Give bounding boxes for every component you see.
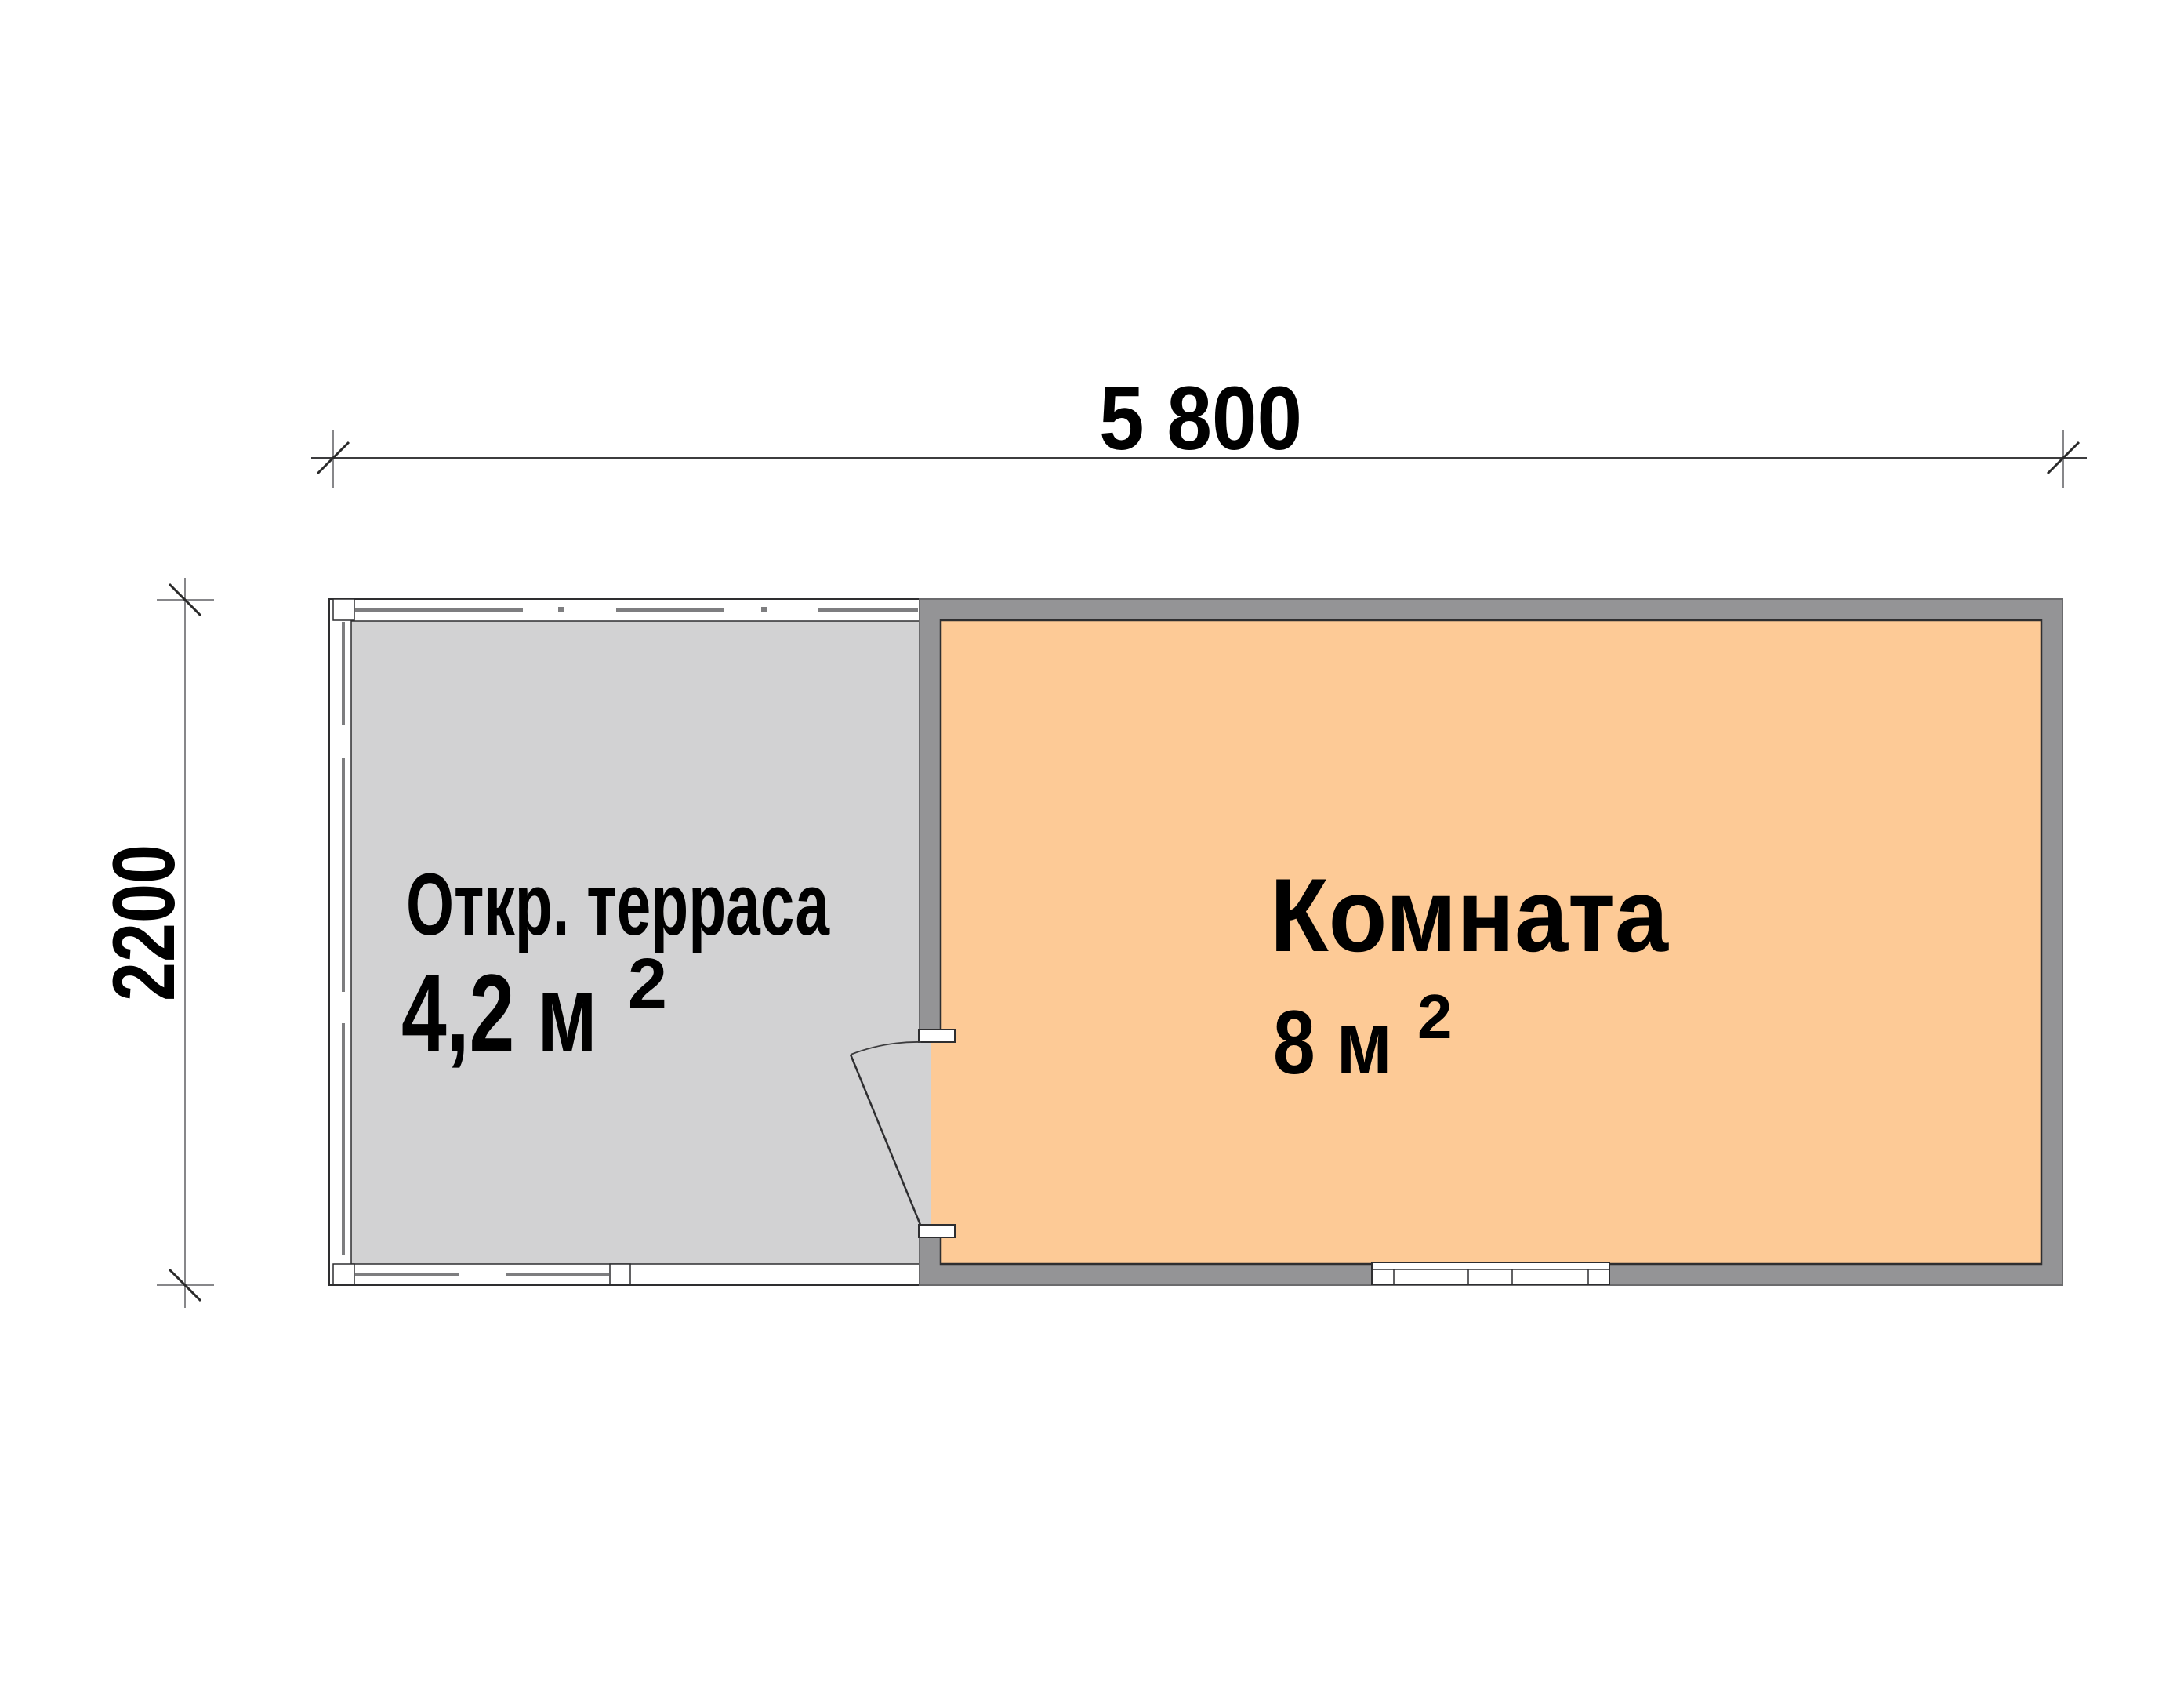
door-jamb-bottom (919, 1225, 955, 1237)
height-dimension: 2200 (95, 578, 214, 1308)
terrace-corner-post (333, 599, 354, 620)
width-dimension-label: 5 800 (1099, 369, 1302, 469)
height-dimension-label: 2200 (95, 844, 193, 1001)
door-jamb-top (919, 1030, 955, 1042)
terrace-name-label: Откр. терраса (406, 855, 829, 953)
floor-plan-drawing: 5 800 2200 Откр. терраса 4,2 м 2 (0, 0, 2184, 1681)
door-opening (918, 1042, 944, 1225)
window (1372, 1262, 1609, 1284)
width-dimension: 5 800 (311, 369, 2087, 488)
room-name-label: Комната (1270, 858, 1669, 974)
terrace-post-dot (558, 607, 564, 612)
terrace-mid-post (610, 1264, 630, 1284)
terrace-post-dot (761, 607, 767, 612)
floor-plan-canvas: 5 800 2200 Откр. терраса 4,2 м 2 (0, 0, 2184, 1681)
terrace-corner-post (333, 1264, 354, 1284)
terrace-area-label: 4,2 м 2 (401, 945, 667, 1074)
